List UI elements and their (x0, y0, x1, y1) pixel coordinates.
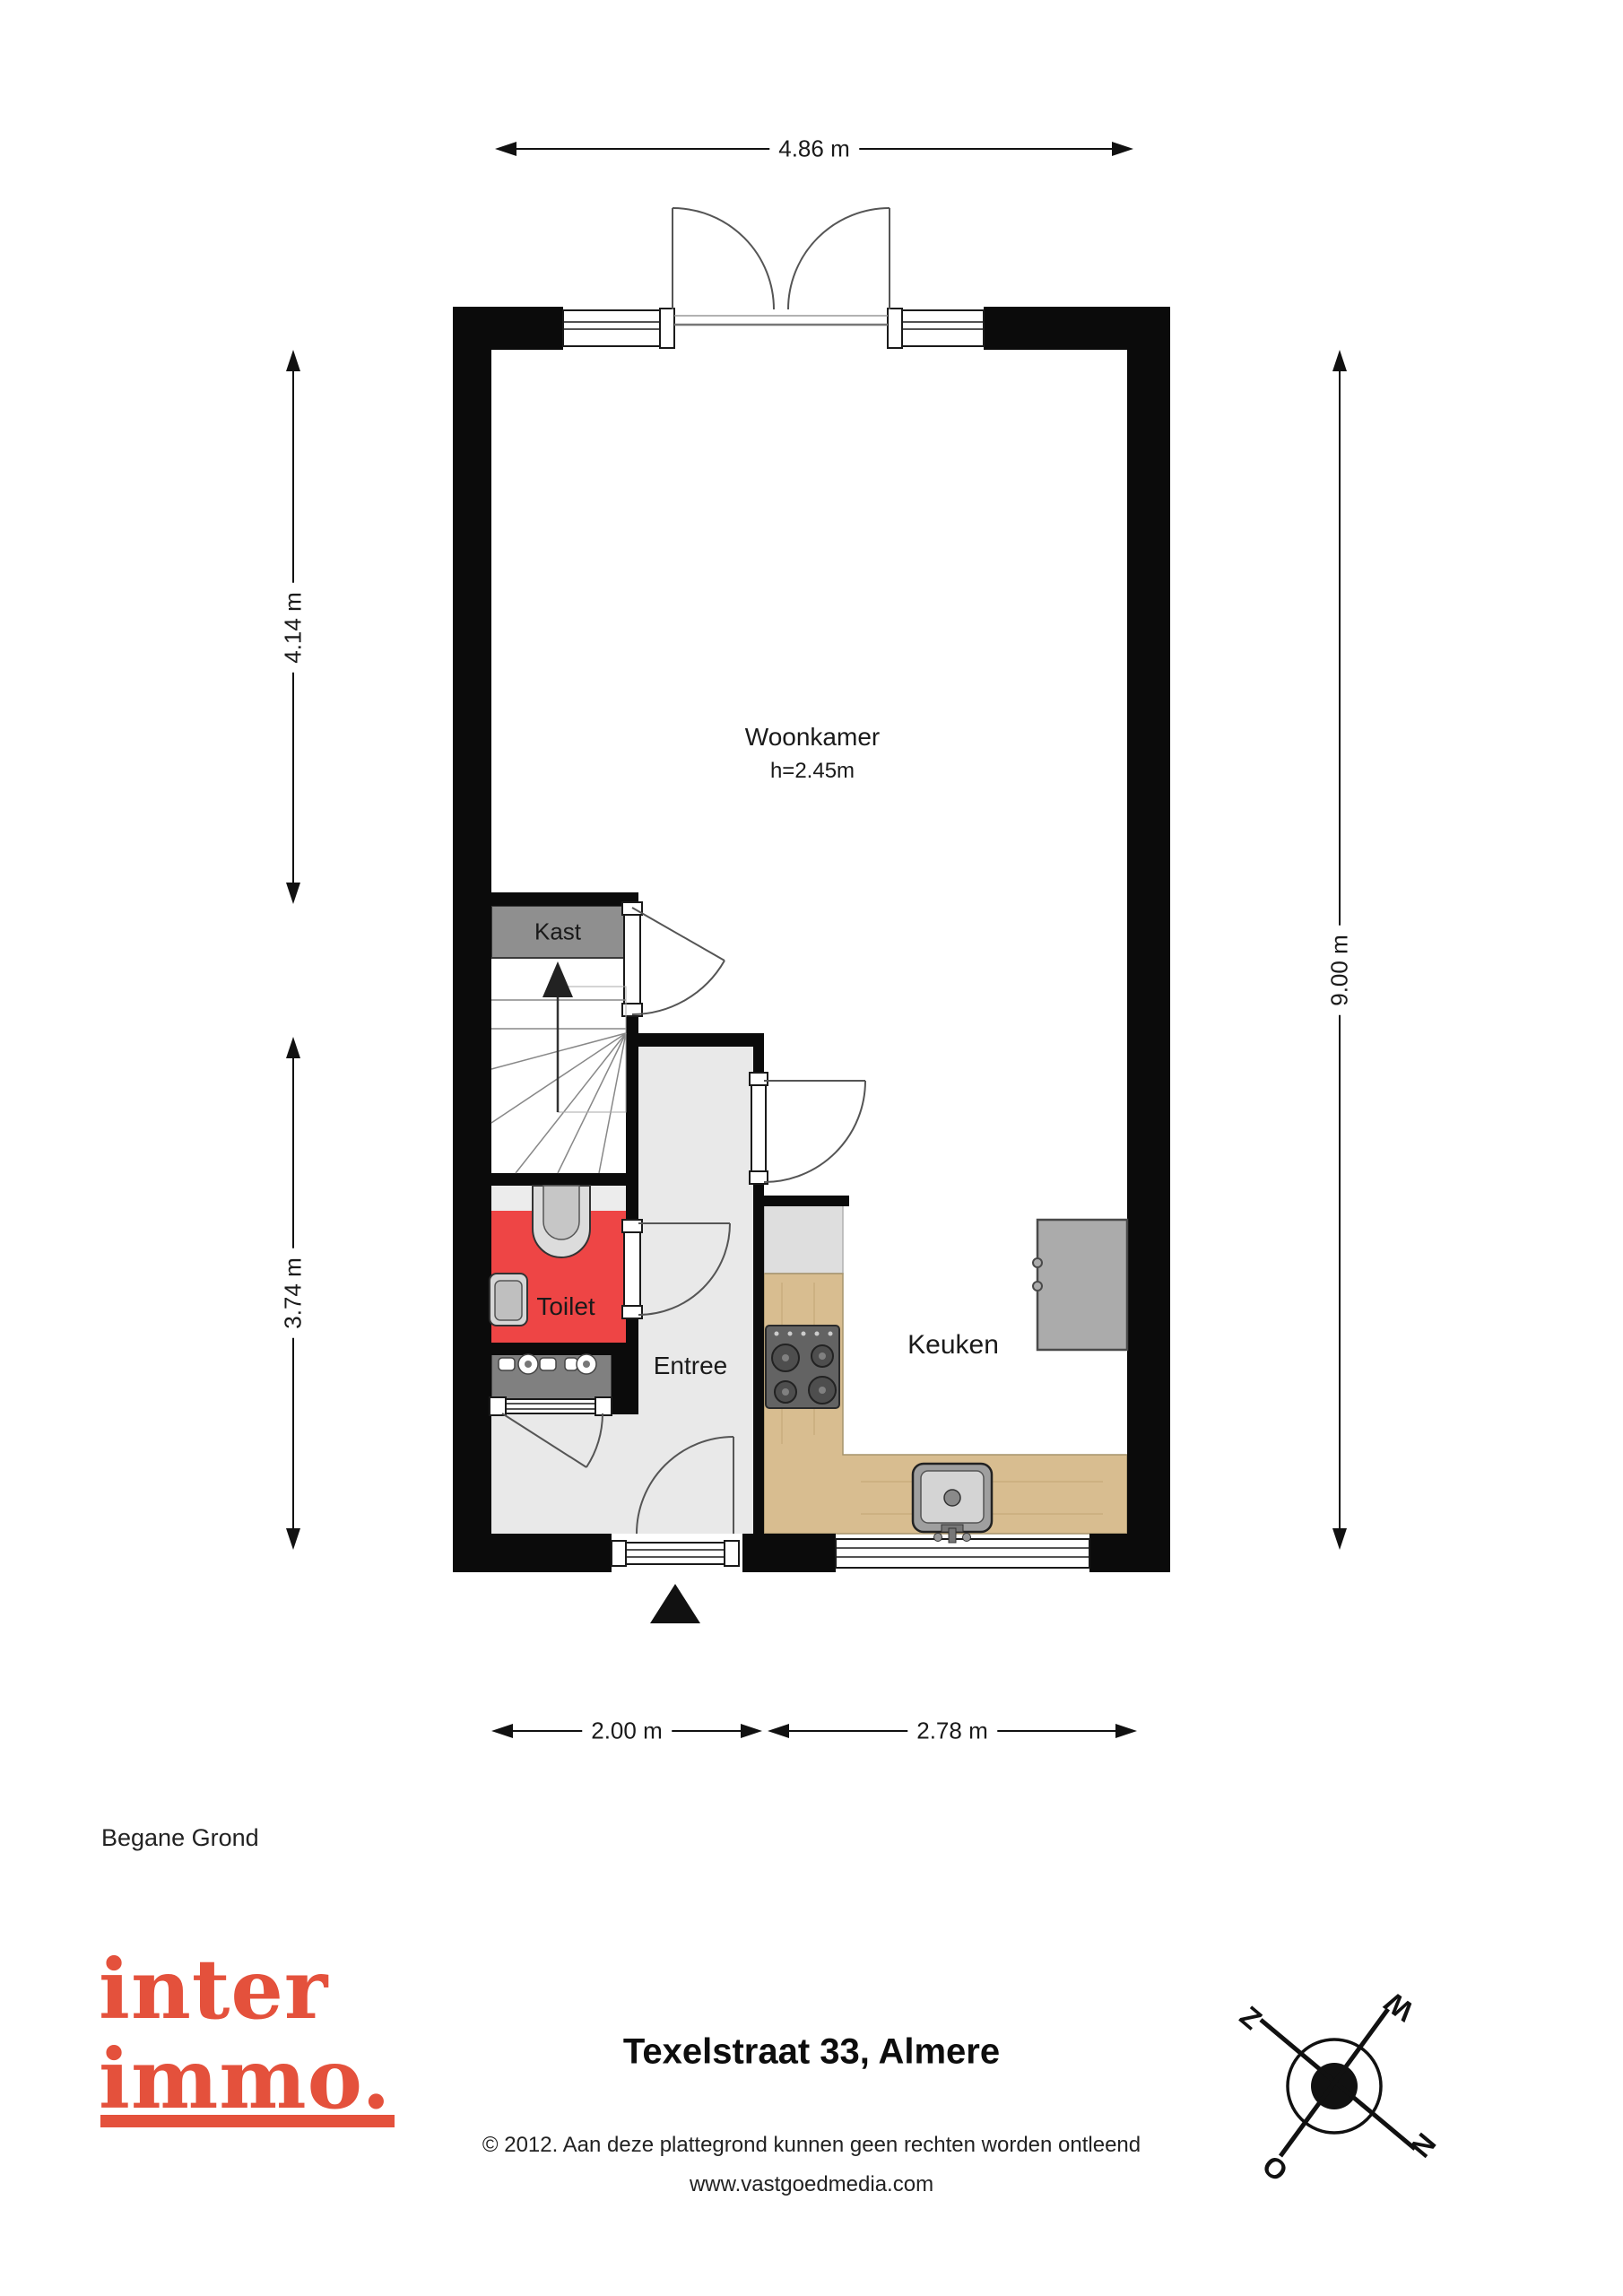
dim-left-lower: 3.74 m (280, 1248, 308, 1338)
wall-kast-side-lower (626, 1014, 638, 1047)
agency-logo: inter immo. (99, 1944, 391, 2124)
doorframe-kast (624, 904, 640, 1014)
doorframe-kitchen (751, 1076, 766, 1182)
dim-right-height: 9.00 m (1326, 926, 1354, 1015)
dim-left-upper: 4.14 m (280, 583, 308, 673)
compass-label-east: O (1256, 2149, 1294, 2188)
room-label-toilet: Toilet (536, 1292, 595, 1321)
window-top-right (902, 310, 984, 346)
doorframe-entrance (619, 1543, 737, 1564)
doorframe-meter-closet (491, 1399, 612, 1413)
wall-hall-left-upper (626, 1047, 638, 1222)
window-post-right (888, 309, 902, 348)
wall-bottom-right (1089, 1534, 1170, 1572)
wall-stairs-bottom (491, 1173, 638, 1186)
logo-line2: immo. (99, 2034, 391, 2124)
wall-bottom-mid (742, 1534, 836, 1572)
wall-kast-top (491, 892, 638, 906)
dim-bottom-right: 2.78 m (907, 1718, 997, 1745)
wall-bottom-left (453, 1534, 612, 1572)
dim-bottom-left: 2.00 m (582, 1718, 672, 1745)
wall-hall-left-lower (612, 1354, 638, 1414)
room-label-entree: Entree (654, 1352, 728, 1380)
sink-drain (944, 1490, 960, 1506)
compass-label-north: N (1404, 2127, 1442, 2164)
wall-hall-right-lower (753, 1182, 764, 1534)
floorplan-page: Z W O N 4.86 m 4.14 m 3.74 m 9.00 m 2.00… (0, 0, 1623, 2296)
refrigerator (1037, 1220, 1127, 1350)
wall-left (453, 307, 491, 1572)
logo-line1: inter (99, 1944, 391, 2034)
logo-underline (100, 2115, 395, 2127)
wall-kitchen-stub (764, 1196, 849, 1206)
wall-right (1127, 307, 1170, 1572)
wall-hall-top (638, 1033, 764, 1047)
room-label-woonkamer: Woonkamer (745, 723, 880, 752)
dim-top-width: 4.86 m (769, 135, 859, 163)
hall-floor-lower (491, 1414, 638, 1534)
website-line: www.vastgoedmedia.com (690, 2172, 933, 2197)
wall-toilet-bottom (491, 1343, 638, 1355)
meter-box (499, 1358, 515, 1370)
compass-label-south: Z (1234, 2000, 1268, 2036)
entrance-marker (650, 1584, 700, 1623)
room-height-note: h=2.45m (770, 759, 855, 784)
floor-label: Begane Grond (101, 1824, 259, 1852)
french-door-left-arc (673, 208, 774, 309)
fridge-hinge (1033, 1282, 1042, 1291)
doorframe-toilet (624, 1222, 640, 1317)
hall-floor (638, 1047, 753, 1534)
window-post-left (660, 309, 674, 348)
copyright-line: © 2012. Aan deze plattegrond kunnen geen… (482, 2133, 1141, 2158)
address-title: Texelstraat 33, Almere (623, 2032, 1000, 2073)
counter-gray-section (764, 1202, 843, 1274)
window-top-left (563, 310, 662, 346)
window-kitchen (836, 1539, 1089, 1568)
compass-rose: Z W O N (1234, 1986, 1443, 2188)
room-label-kast: Kast (534, 918, 581, 946)
room-label-keuken: Keuken (907, 1330, 999, 1361)
french-door-right-arc (788, 208, 890, 309)
fridge-hinge (1033, 1258, 1042, 1267)
compass-label-west: W (1378, 1986, 1419, 2028)
